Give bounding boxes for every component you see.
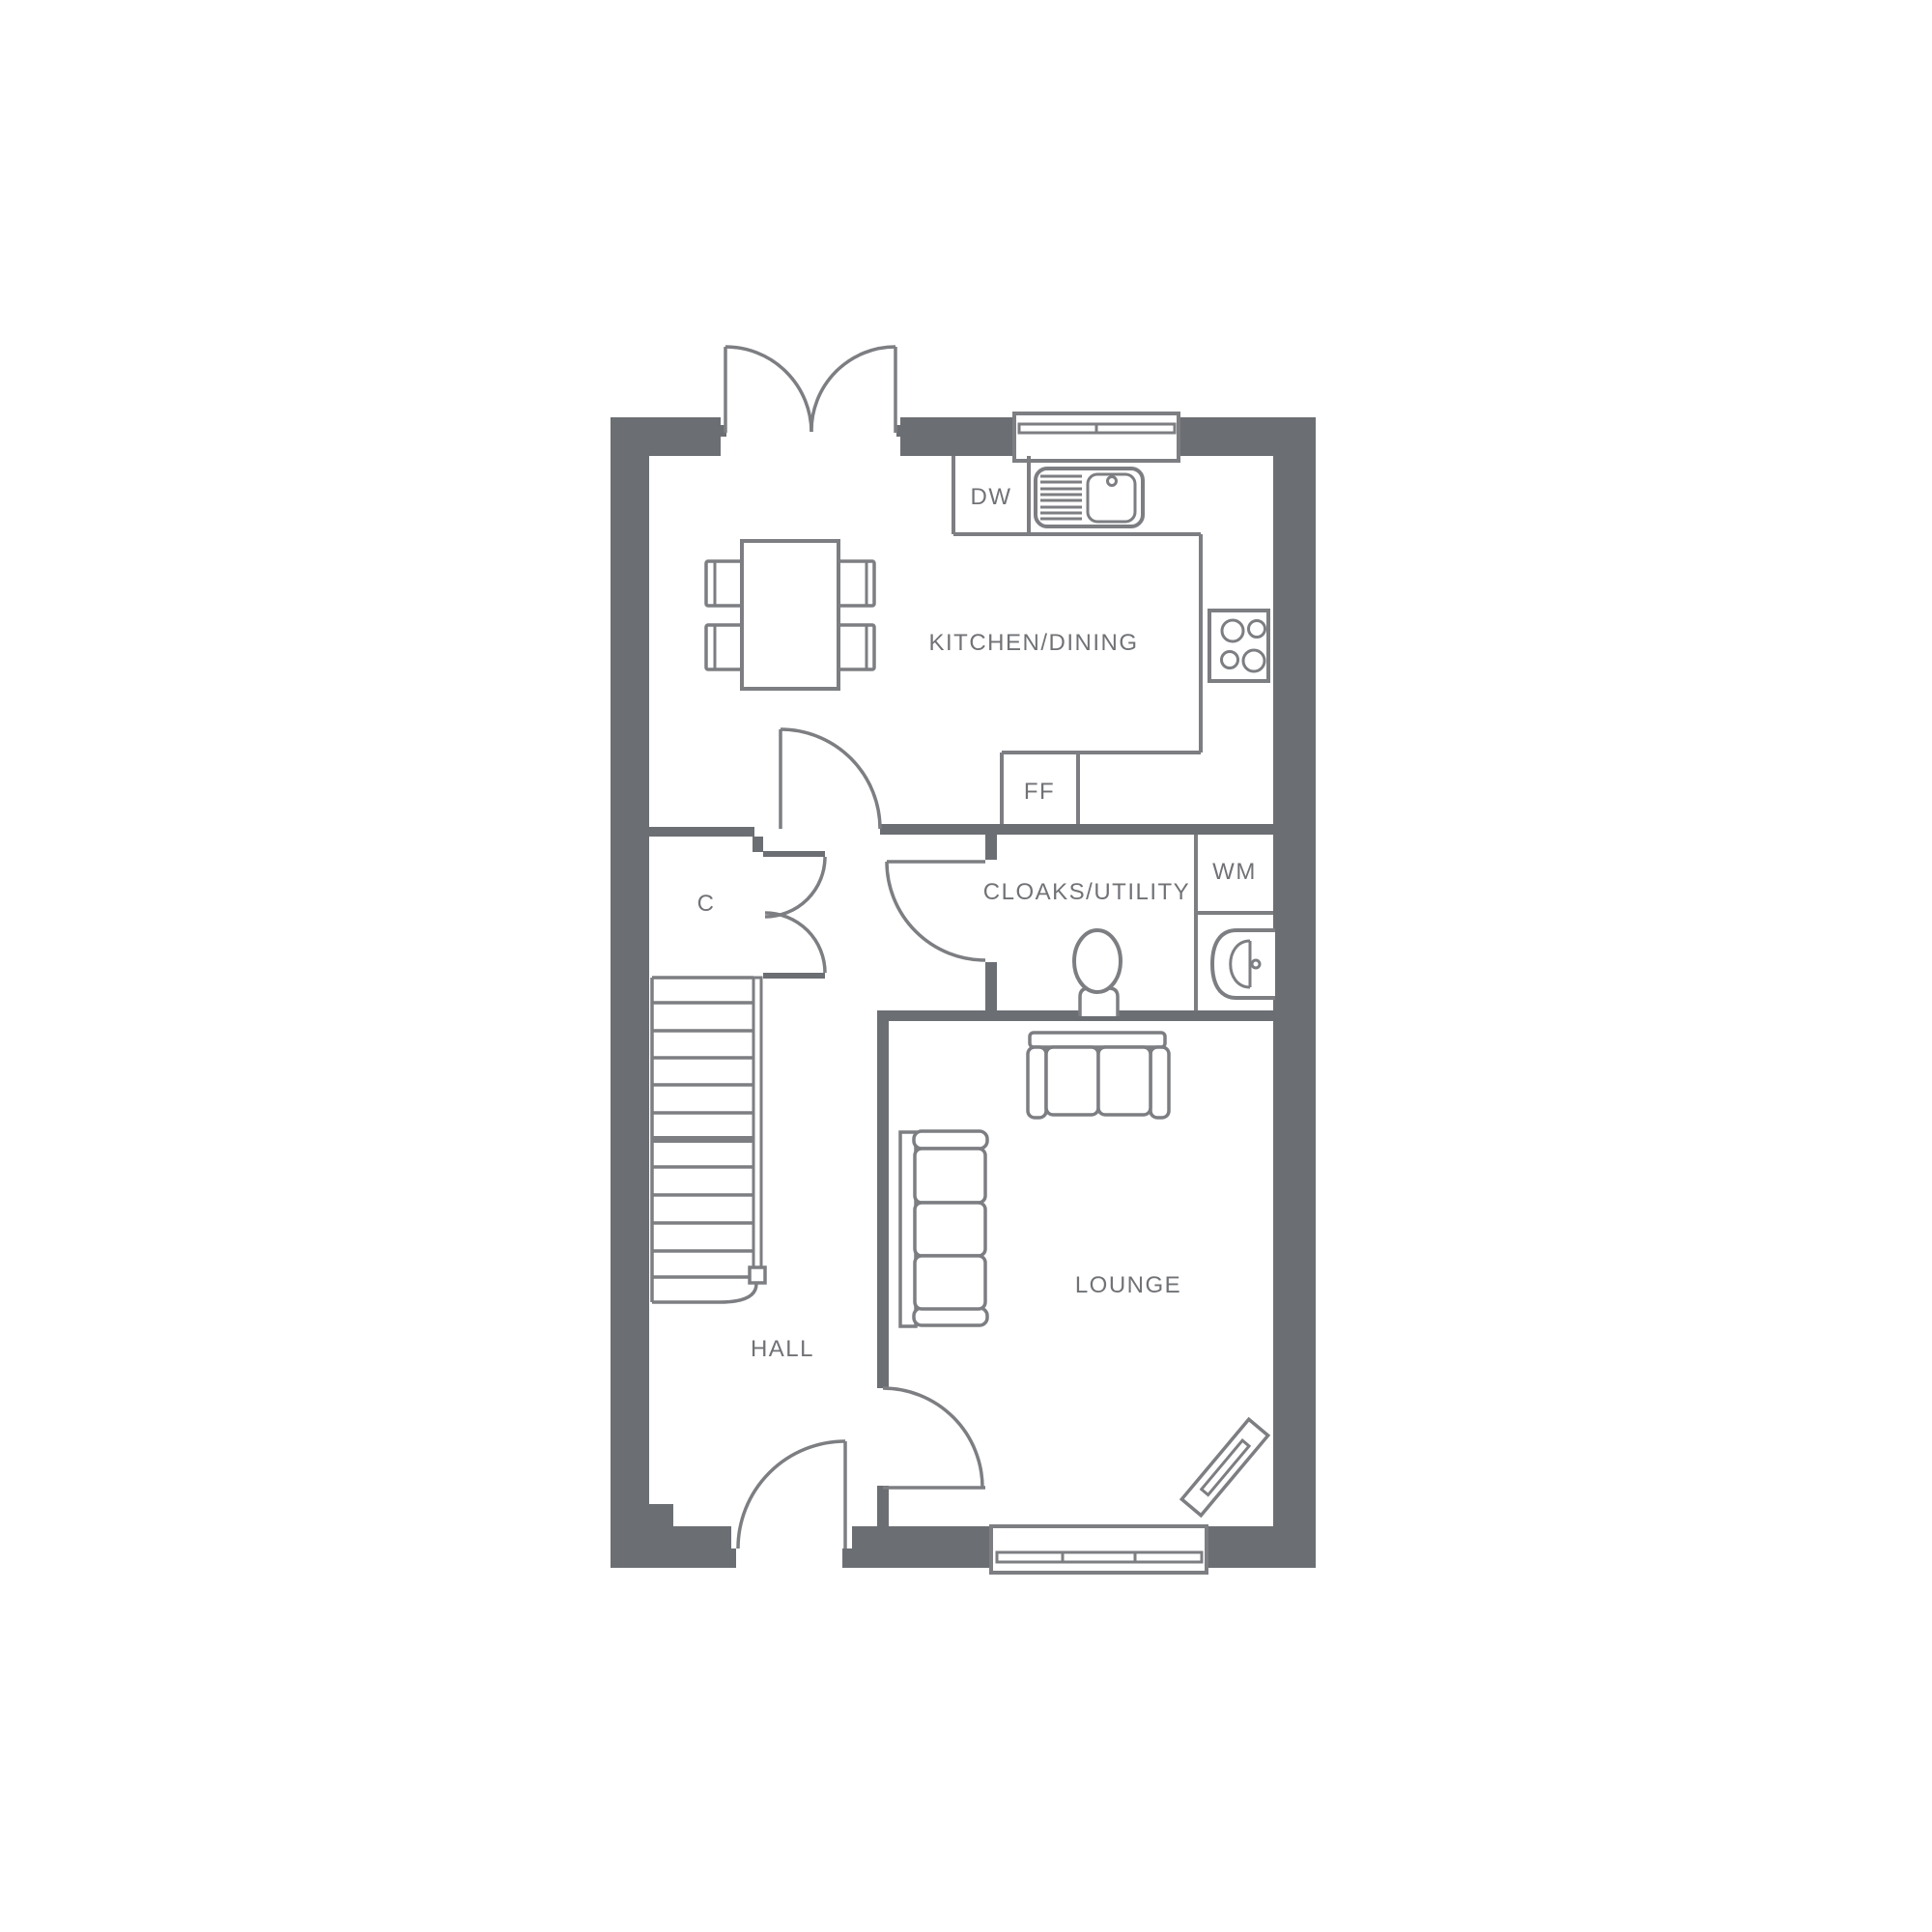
wall-right — [1273, 417, 1316, 1568]
room-label-cloaks-utility: CLOAKS/UTILITY — [983, 879, 1190, 905]
dining-table — [742, 541, 838, 689]
closet-double-door — [763, 851, 825, 979]
toilet — [1074, 930, 1121, 1016]
window-frame — [1014, 413, 1179, 461]
room-label-hall: HALL — [751, 1336, 814, 1362]
wall-kitchen-hall-left — [649, 827, 754, 837]
front-door — [738, 1441, 845, 1548]
wall-hall-lounge — [877, 1021, 889, 1388]
hob — [1209, 611, 1268, 681]
wall-top-left — [611, 417, 721, 456]
wall-top-mid — [900, 417, 1014, 456]
dining-chair — [706, 561, 742, 606]
dining-set — [706, 541, 874, 689]
stairs — [652, 978, 765, 1302]
sofa-large — [900, 1131, 987, 1326]
closet-door-top-arc — [765, 857, 825, 917]
cloaks-jamb-bottom — [985, 962, 997, 1012]
sofa-small — [1028, 1033, 1169, 1118]
kitchen-sink — [1036, 469, 1143, 526]
lounge-window — [991, 1526, 1207, 1573]
front-door-arc — [738, 1441, 845, 1548]
cloaks-door-arc — [887, 862, 985, 960]
corner-tv-unit — [1181, 1419, 1267, 1515]
cloaks-door — [887, 862, 985, 960]
wall-bottom-left-b — [611, 1548, 736, 1568]
kitchen-door — [781, 729, 880, 829]
wall-bottom-mid-a — [852, 1526, 991, 1548]
entrance-double-door — [725, 347, 895, 433]
sofa-arm — [1028, 1047, 1046, 1118]
wall-cloaks-lounge — [877, 1010, 1275, 1021]
sofa-back — [1030, 1033, 1165, 1047]
hob-burner — [1222, 620, 1243, 641]
basin — [1212, 930, 1275, 998]
stair-newel-post — [750, 1267, 765, 1283]
wall-left — [611, 417, 649, 1504]
hob-burner — [1222, 652, 1238, 668]
dining-chair — [838, 625, 874, 669]
room-label-kitchen-dining: KITCHEN/DINING — [928, 630, 1138, 656]
floor-plan-canvas: KITCHEN/DINING CLOAKS/UTILITY LOUNGE HAL… — [0, 0, 1932, 1932]
sofa-cushion — [1046, 1047, 1098, 1115]
hob-burner — [1243, 650, 1264, 671]
closet-jamb — [753, 837, 763, 852]
sofa-cushion — [915, 1256, 985, 1309]
closet-door-bottom-arc — [765, 913, 825, 973]
sofa-cushion — [915, 1149, 985, 1203]
entrance-door-right-arc — [811, 347, 895, 432]
appliance-label-washing-machine: WM — [1212, 859, 1257, 885]
stair-bullnose — [652, 1284, 756, 1302]
dining-chair — [706, 625, 742, 669]
entrance-door-left-arc — [725, 347, 811, 432]
dining-chair — [838, 561, 874, 606]
kitchen-counter — [953, 456, 1273, 1010]
lounge-door-arc — [883, 1388, 982, 1488]
wall-bottom-right — [1207, 1526, 1316, 1568]
room-label-closet: C — [697, 891, 716, 917]
wall-left-step — [611, 1504, 673, 1526]
lounge-door — [883, 1388, 985, 1488]
wall-bottom-mid-b — [842, 1548, 991, 1568]
toilet-bowl — [1074, 930, 1121, 992]
kitchen-door-arc — [781, 729, 880, 829]
sofa-arm — [914, 1131, 987, 1149]
kitchen-window — [1014, 413, 1179, 461]
closet-door-top-leaf — [763, 851, 825, 857]
appliance-label-dishwasher: DW — [971, 484, 1012, 510]
sofa-cushion — [915, 1203, 985, 1256]
stair-stringer — [753, 978, 761, 1271]
tv-outline — [1181, 1419, 1267, 1515]
stair-landing — [652, 1136, 753, 1143]
wall-bottom-left-a — [611, 1526, 731, 1548]
appliance-label-fridge-freezer: FF — [1024, 779, 1055, 805]
wall-hall-lounge-stub — [877, 1486, 889, 1529]
entrance-jamb-right — [896, 425, 904, 437]
room-label-lounge: LOUNGE — [1075, 1272, 1181, 1298]
wall-kitchen-cloaks — [880, 824, 1275, 835]
hob-burner — [1249, 621, 1265, 638]
cloaks-jamb-top — [985, 835, 997, 860]
sofa-cushion — [1098, 1047, 1151, 1115]
closet-door-bottom-leaf — [763, 973, 825, 979]
window-frame — [991, 1526, 1207, 1573]
sofa-arm — [1151, 1047, 1169, 1118]
floor-plan: KITCHEN/DINING CLOAKS/UTILITY LOUNGE HAL… — [0, 0, 1932, 1932]
